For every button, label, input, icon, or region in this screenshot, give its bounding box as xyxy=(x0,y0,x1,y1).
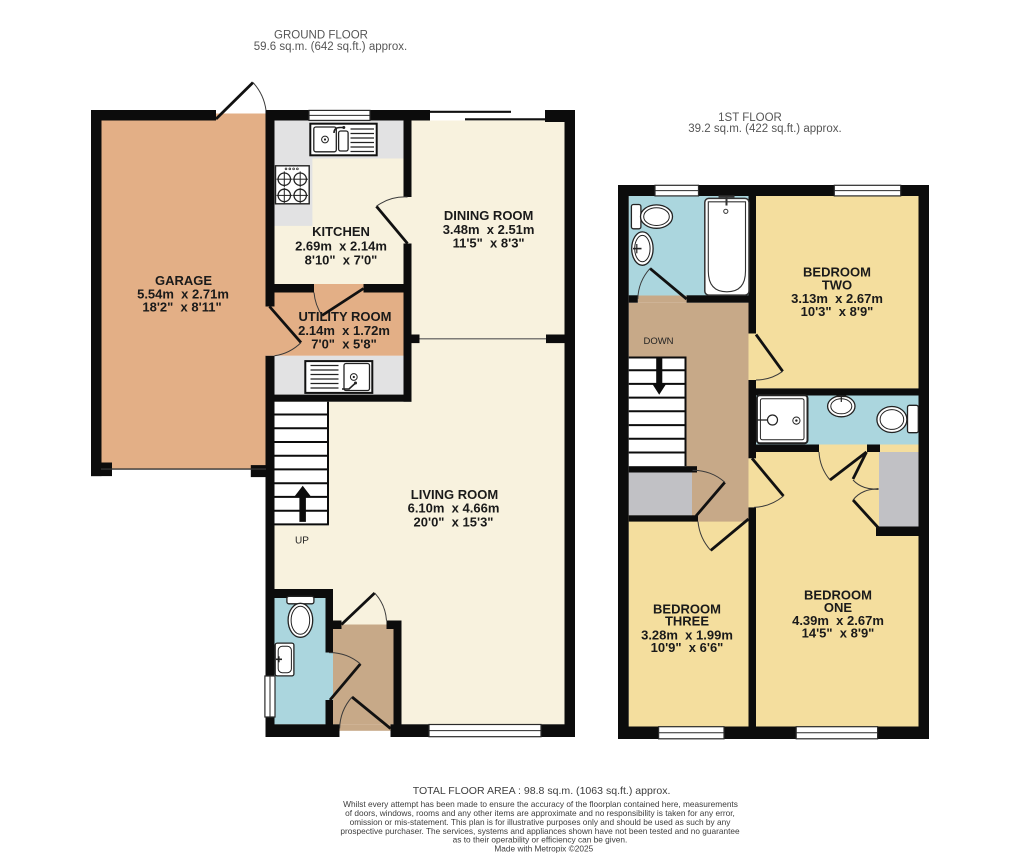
svg-text:DINING ROOM: DINING ROOM xyxy=(444,208,534,223)
svg-text:UP: UP xyxy=(295,536,309,547)
svg-text:Made with Metropix ©2025: Made with Metropix ©2025 xyxy=(494,843,593,853)
svg-text:2.14m x 1.72m: 2.14m x 1.72m xyxy=(298,323,390,338)
svg-text:10'3" x 8'9": 10'3" x 8'9" xyxy=(801,304,874,319)
svg-text:10'9" x 6'6": 10'9" x 6'6" xyxy=(651,640,724,655)
svg-text:2.69m x 2.14m: 2.69m x 2.14m xyxy=(295,239,387,254)
svg-text:7'0" x 5'8": 7'0" x 5'8" xyxy=(311,337,377,352)
svg-text:14'5" x 8'9": 14'5" x 8'9" xyxy=(802,626,875,641)
svg-text:18'2" x 8'11": 18'2" x 8'11" xyxy=(142,300,221,315)
svg-text:8'10" x 7'0": 8'10" x 7'0" xyxy=(305,253,378,268)
svg-text:59.6 sq.m. (642 sq.ft.) approx: 59.6 sq.m. (642 sq.ft.) approx. xyxy=(254,41,407,53)
svg-text:THREE: THREE xyxy=(665,614,709,629)
svg-text:DOWN: DOWN xyxy=(643,336,673,347)
svg-text:20'0" x 15'3": 20'0" x 15'3" xyxy=(414,515,494,530)
svg-text:KITCHEN: KITCHEN xyxy=(312,224,370,239)
svg-text:LIVING ROOM: LIVING ROOM xyxy=(411,487,498,502)
svg-text:11'5" x 8'3": 11'5" x 8'3" xyxy=(453,235,525,250)
svg-text:39.2 sq.m. (422 sq.ft.) approx: 39.2 sq.m. (422 sq.ft.) approx. xyxy=(688,123,841,135)
svg-text:TOTAL FLOOR AREA : 98.8 sq.m.: TOTAL FLOOR AREA : 98.8 sq.m. (1063 sq.f… xyxy=(413,785,671,797)
svg-text:6.10m x 4.66m: 6.10m x 4.66m xyxy=(408,501,500,516)
svg-text:GROUND FLOOR: GROUND FLOOR xyxy=(274,29,368,41)
